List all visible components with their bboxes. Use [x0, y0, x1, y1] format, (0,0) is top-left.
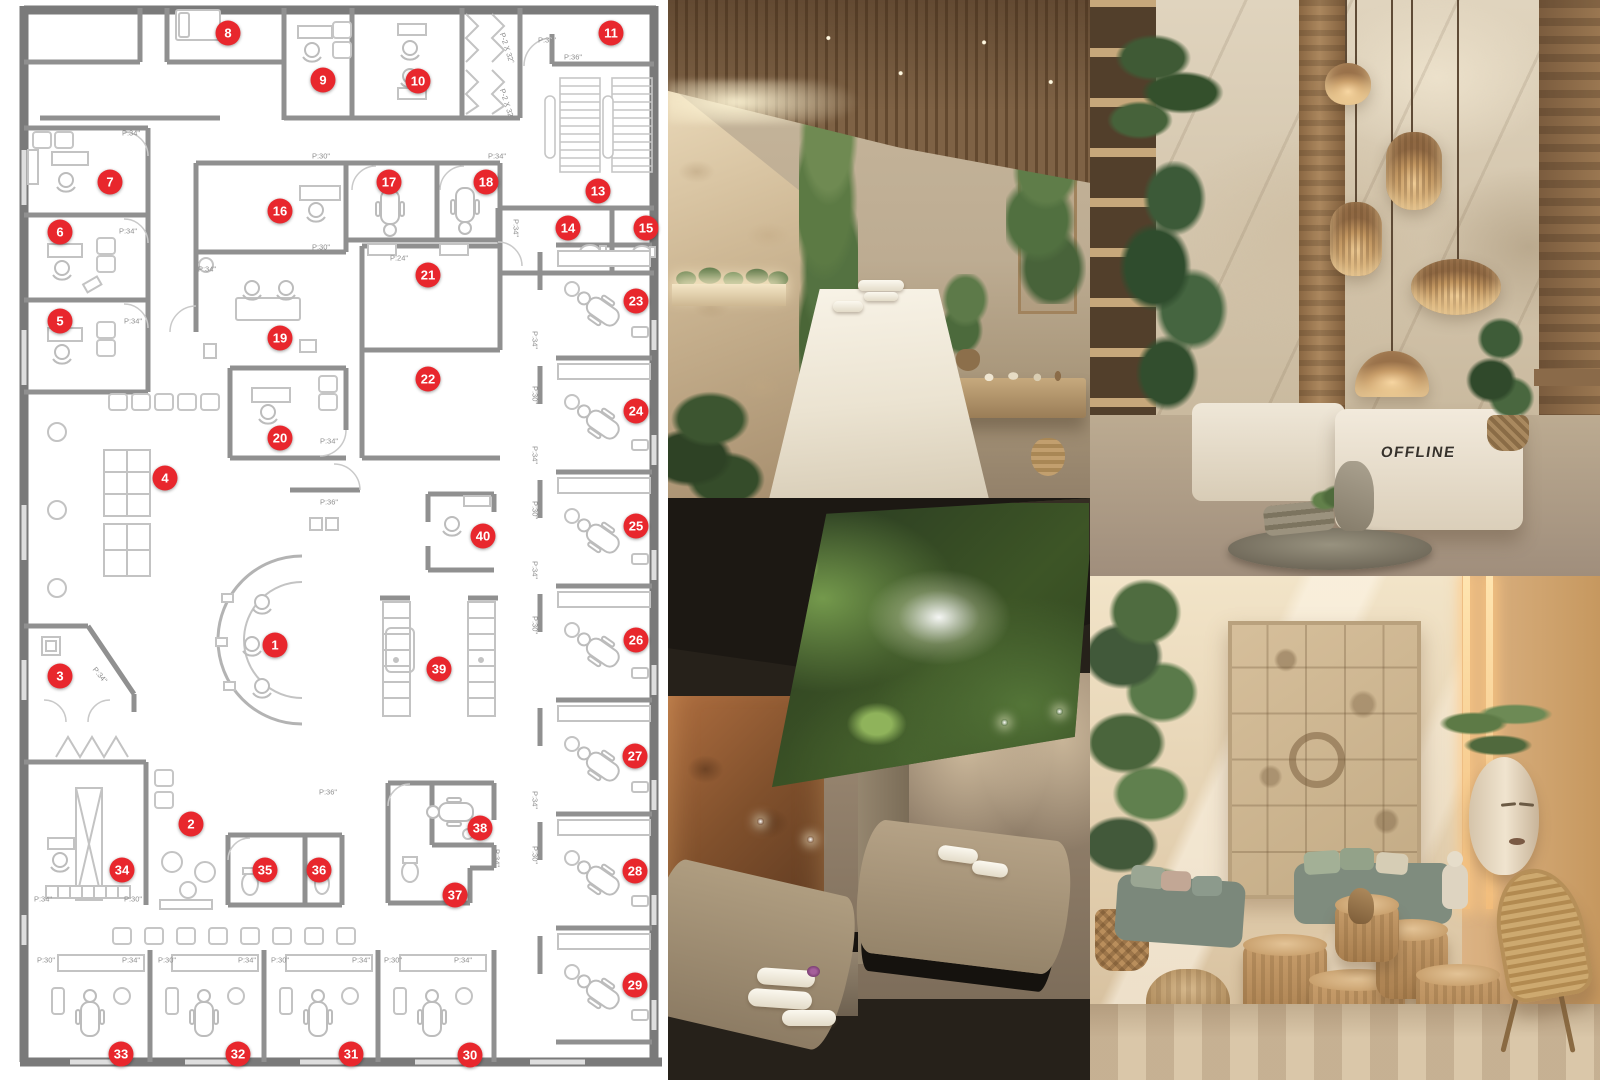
dimension-label: P:30": [37, 956, 55, 965]
massage-bed-right: [851, 817, 1077, 976]
sculpture-bust: [1442, 863, 1468, 909]
plan-marker-15: 15: [634, 216, 659, 241]
operatory-units-bottom: [52, 955, 486, 1036]
towel-roll: [833, 301, 863, 312]
plan-marker-3: 3: [48, 664, 73, 689]
plan-marker-31: 31: [339, 1042, 364, 1067]
dimension-label: P:24": [390, 254, 408, 263]
pendant-lamp: [1386, 132, 1442, 210]
plan-marker-19: 19: [268, 326, 293, 351]
plan-marker-7: 7: [98, 170, 123, 195]
plant-behind-desk: [1462, 317, 1539, 426]
dimension-label: P:30": [531, 501, 540, 519]
plan-marker-37: 37: [443, 883, 468, 908]
dimension-label: P:34": [488, 152, 506, 161]
ceiling-spotlight: [1056, 708, 1063, 715]
pendant-lamp: [1330, 202, 1382, 276]
dimension-label: P:30": [384, 956, 402, 965]
dimension-label: P:34": [531, 561, 540, 579]
pendant-cord: [1411, 0, 1413, 138]
plan-marker-6: 6: [48, 220, 73, 245]
bench-accessories: [976, 369, 1069, 384]
plan-marker-16: 16: [268, 199, 293, 224]
plan-marker-21: 21: [416, 263, 441, 288]
folded-towel: [864, 292, 898, 301]
lit-stone-ledge: [672, 284, 786, 306]
dimension-label: P:36": [320, 498, 338, 507]
plan-marker-8: 8: [216, 21, 241, 46]
photo-reception-lobby: OFFLINE: [1090, 0, 1600, 576]
plan-marker-33: 33: [109, 1042, 134, 1067]
tall-plant: [1116, 161, 1238, 426]
plan-marker-11: 11: [599, 21, 624, 46]
dimension-label: P:34": [124, 317, 142, 326]
pillow: [1192, 876, 1222, 896]
dimension-label: P:34": [238, 956, 256, 965]
wood-side-table: [1534, 369, 1600, 386]
plan-marker-2: 2: [179, 812, 204, 837]
floorplan-panel: P:34"P:30"P:34"P:30"P:34"P:24"P:36"P:36"…: [0, 0, 668, 1080]
stone-water-feature: [1228, 495, 1432, 570]
dimension-label: P:30": [312, 243, 330, 252]
dimension-label: P:30": [312, 152, 330, 161]
stone-object: [1348, 888, 1374, 924]
dimension-label: P:30": [531, 616, 540, 634]
standing-stone: [1334, 461, 1374, 531]
plan-marker-30: 30: [458, 1043, 483, 1068]
dimension-label: P:36": [319, 788, 337, 797]
foreground-plant: [668, 388, 786, 498]
plan-marker-13: 13: [586, 179, 611, 204]
pillow: [1303, 849, 1341, 874]
pendant-cord: [1345, 0, 1347, 69]
dimension-label: P:34": [122, 129, 140, 138]
wood-wall-right: [1539, 0, 1600, 426]
dimension-label: P:34": [531, 331, 540, 349]
pillow: [1340, 848, 1374, 870]
plan-marker-9: 9: [311, 68, 336, 93]
dimension-label: P:30": [124, 895, 142, 904]
pendant-lamp: [1411, 259, 1501, 315]
palm-leaves: [1100, 6, 1233, 179]
plan-marker-25: 25: [624, 514, 649, 539]
plan-marker-26: 26: [624, 628, 649, 653]
dimension-label: P:34": [454, 956, 472, 965]
folded-towel: [858, 280, 904, 291]
plan-marker-40: 40: [471, 524, 496, 549]
plan-marker-38: 38: [468, 816, 493, 841]
dimension-label: P:30": [531, 386, 540, 404]
water-platter: [1228, 528, 1432, 570]
plan-marker-24: 24: [624, 399, 649, 424]
plan-stairs: [545, 78, 652, 172]
plan-marker-32: 32: [226, 1042, 251, 1067]
panel-circle-motif: [1289, 732, 1345, 788]
basket-planter: [1487, 415, 1529, 451]
dimension-label: P:34": [512, 219, 521, 237]
plan-marker-20: 20: [268, 426, 293, 451]
design-board: P:34"P:30"P:34"P:30"P:34"P:24"P:36"P:36"…: [0, 0, 1600, 1080]
plan-marker-28: 28: [623, 859, 648, 884]
plan-marker-39: 39: [427, 657, 452, 682]
dimension-label: P:34": [531, 791, 540, 809]
wood-bench: [955, 378, 1086, 418]
photo-lounge-seating-area: [1090, 576, 1600, 1080]
ceiling-spotlight: [807, 836, 814, 843]
plan-marker-5: 5: [48, 309, 73, 334]
photo-spa-treatment-room: [668, 0, 1090, 498]
pillow: [1161, 870, 1192, 891]
dimension-label: P:30": [271, 956, 289, 965]
desk-logo: OFFLINE: [1379, 444, 1456, 461]
plan-marker-22: 22: [416, 367, 441, 392]
photo-couples-massage-room: [668, 498, 1090, 1080]
ceiling-downlights: [795, 5, 1074, 115]
dimension-label: P:36": [564, 53, 582, 62]
dimension-label: P:34": [531, 446, 540, 464]
plan-marker-18: 18: [474, 170, 499, 195]
plan-marker-4: 4: [153, 466, 178, 491]
pillow: [1375, 852, 1409, 876]
woven-basket: [1031, 438, 1065, 476]
vase-lips: [1509, 838, 1525, 845]
dimension-label: P:34": [119, 227, 137, 236]
dimension-label: P:30": [531, 846, 540, 864]
plan-marker-10: 10: [406, 69, 431, 94]
plan-marker-36: 36: [307, 858, 332, 883]
plan-marker-34: 34: [110, 858, 135, 883]
dimension-label: P:34": [352, 956, 370, 965]
plan-marker-17: 17: [377, 170, 402, 195]
dimension-label: P:30": [158, 956, 176, 965]
plant-pot: [956, 349, 980, 371]
patterned-rug: [1090, 1004, 1600, 1080]
plan-marker-1: 1: [263, 633, 288, 658]
dimension-label: P:34": [34, 895, 52, 904]
plan-marker-27: 27: [623, 744, 648, 769]
towel-roll: [782, 1010, 836, 1026]
plan-marker-14: 14: [556, 216, 581, 241]
plan-marker-29: 29: [623, 973, 648, 998]
dimension-label: P:34": [320, 437, 338, 446]
dimension-label: P:34": [122, 956, 140, 965]
dimension-label: P:36": [538, 36, 556, 45]
ceiling-spotlight: [757, 818, 764, 825]
plan-marker-35: 35: [253, 858, 278, 883]
dimension-label: P:34": [198, 265, 216, 274]
pendant-lamp: [1325, 63, 1371, 105]
pendant-cord: [1457, 0, 1459, 259]
vase-plant: [1437, 687, 1559, 778]
floorplan-drawing: [0, 0, 668, 1080]
plan-marker-23: 23: [624, 289, 649, 314]
dimension-label: P:34": [493, 849, 502, 867]
